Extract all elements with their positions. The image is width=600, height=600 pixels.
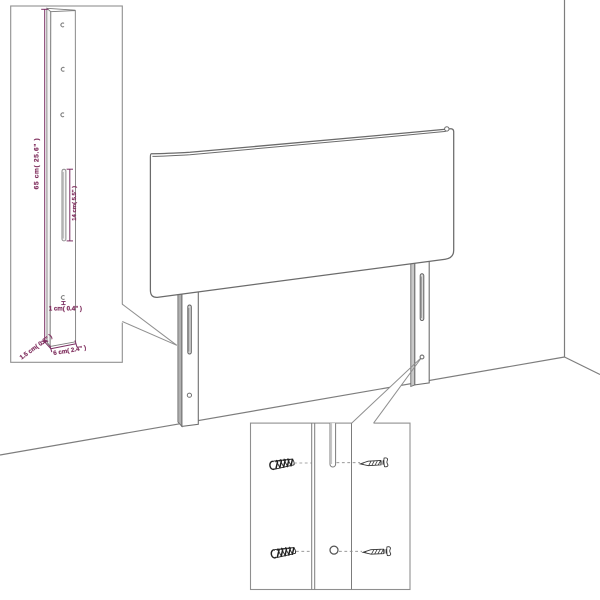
svg-text:65 cm( 25.6" ): 65 cm( 25.6" ) — [34, 138, 41, 190]
svg-text:14 cm( 5.5" ): 14 cm( 5.5" ) — [72, 186, 78, 221]
svg-text:1 cm( 0.4" ): 1 cm( 0.4" ) — [49, 305, 82, 312]
